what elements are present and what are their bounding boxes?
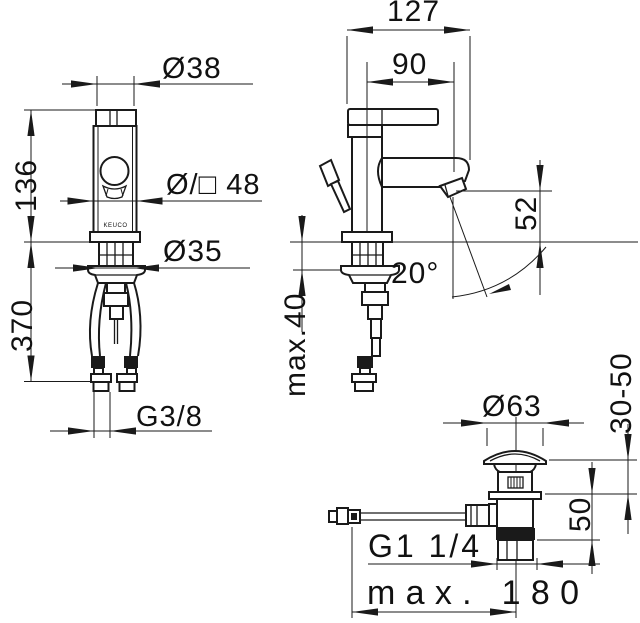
front-tailpiece: [107, 283, 125, 293]
dim-label-dia63: Ø63: [482, 390, 542, 423]
drain-thread-band: [496, 528, 535, 540]
dim-label-127: 127: [387, 0, 440, 28]
side-hose: [372, 338, 380, 356]
front-base-plate: [90, 232, 140, 242]
drain-flange: [489, 492, 541, 499]
dim-label-dia38: Ø38: [162, 52, 222, 85]
hose-right-sleeve: [124, 356, 138, 368]
dim-label-50: 50: [564, 497, 597, 532]
hose-left-nut: [91, 374, 111, 382]
dim-label-30-50: 30-50: [605, 352, 638, 434]
rod-joint-pin: [351, 513, 357, 520]
dim-label-20deg: 20°: [391, 257, 439, 290]
drain-ball-boss: [489, 504, 497, 526]
hose-right-thread: [120, 382, 135, 391]
drain-tail: [498, 540, 533, 560]
dim-label-90: 90: [392, 48, 427, 81]
hose-left-sleeve: [91, 356, 105, 368]
drain-lower-body: [497, 499, 533, 528]
front-cartridge-cap: [96, 110, 136, 126]
dim-label-48: Ø/□ 48: [166, 169, 260, 201]
side-hose-sleeve: [357, 356, 373, 368]
dim-label-52: 52: [510, 196, 543, 231]
side-tail-lower: [371, 319, 381, 338]
front-tail-step: [110, 306, 123, 319]
side-cartridge-neck: [348, 125, 382, 137]
hose-left-thread: [94, 382, 109, 391]
side-tailpiece: [365, 283, 385, 292]
dim-label-g38: G3/8: [136, 401, 203, 433]
front-tail-collar: [104, 293, 128, 306]
dim-label-136: 136: [10, 159, 43, 212]
hose-right-nut: [117, 374, 137, 382]
front-knob: [101, 157, 129, 185]
brand-logo: KEUCO: [104, 223, 128, 229]
side-hose-thread: [355, 382, 373, 391]
rod-end-cap: [329, 511, 337, 522]
side-base-plate: [342, 232, 392, 242]
side-hose-nut: [352, 374, 376, 382]
technical-drawing-canvas: KEUCO: [0, 0, 640, 623]
technical-drawing-page: KEUCO: [0, 0, 640, 623]
dim-label-g114: G1 1/4: [368, 528, 482, 564]
dim-label-max40: max.40: [279, 293, 312, 397]
side-lever-handle: [348, 109, 438, 125]
dim-label-dia35: Ø35: [163, 235, 223, 268]
drawing-background: [0, 0, 640, 623]
drain-upper-body: [498, 472, 532, 492]
dim-label-370: 370: [6, 299, 39, 352]
rod-joint: [337, 508, 348, 524]
side-tail-step: [368, 305, 382, 319]
side-tail-collar: [362, 292, 388, 305]
